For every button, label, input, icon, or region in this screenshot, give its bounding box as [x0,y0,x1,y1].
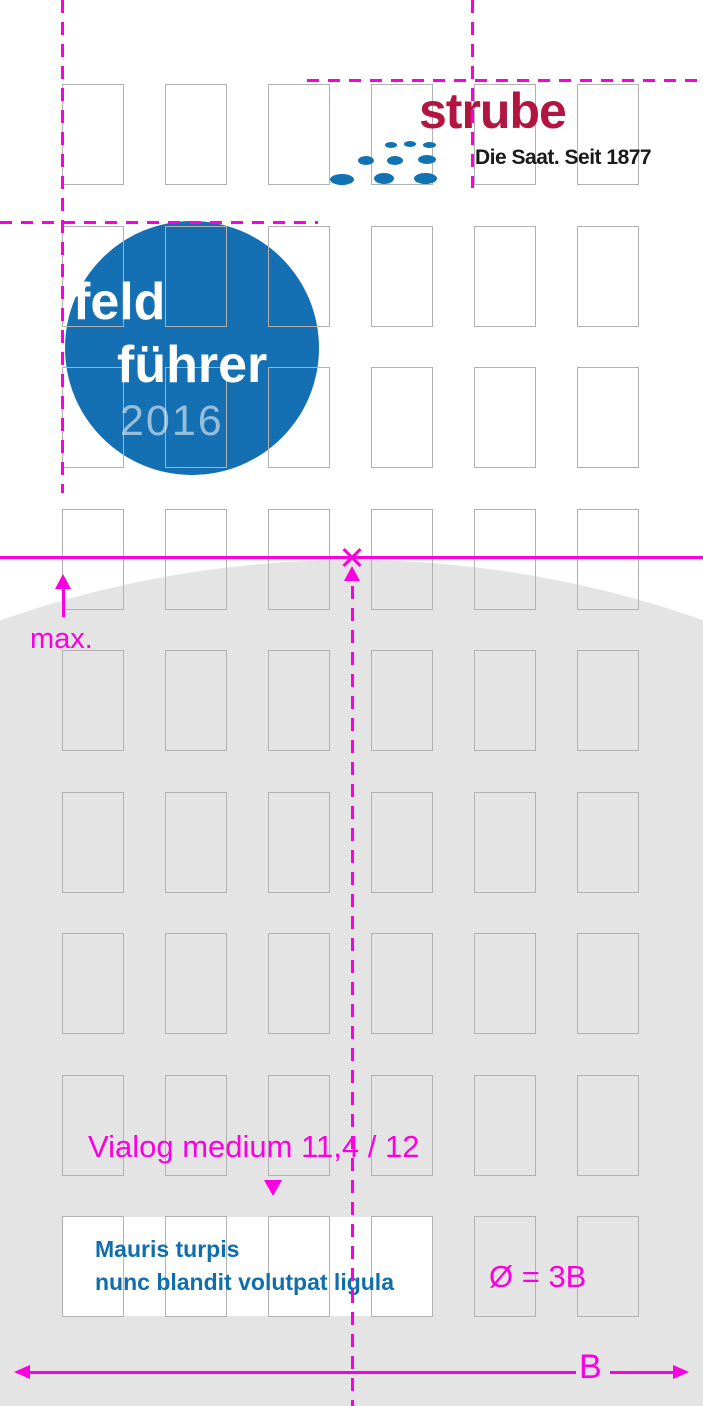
seed-dot [387,156,403,165]
width-arrow-right-icon [673,1365,689,1379]
grid-cell [371,792,433,893]
seed-dot [358,156,374,165]
center-cross-mark [340,545,364,569]
grid-cell [371,226,433,327]
grid-cell [268,650,330,751]
guide-dashed-top [307,79,703,82]
grid-cell [268,792,330,893]
grid-cell [474,509,536,610]
width-line-right [610,1371,676,1374]
grid-cell [371,367,433,468]
grid-cell [474,933,536,1034]
guide-dashed-right-vertical [471,0,474,188]
guide-dashed-left-vertical [61,0,64,493]
logo-text-year: 2016 [120,400,224,443]
grid-cell [577,792,639,893]
grid-cell [165,933,227,1034]
grid-cell [371,933,433,1034]
grid-cell [62,509,124,610]
grid-cell [474,1075,536,1176]
grid-cell [62,933,124,1034]
grid-cell [165,509,227,610]
grid-cell [165,226,227,327]
sample-text-line1: Mauris turpis [95,1233,394,1266]
grid-cell [371,509,433,610]
grid-cell [268,509,330,610]
max-arrow-line [62,588,65,617]
max-arrow-up-icon [55,574,71,589]
grid-cell [577,650,639,751]
grid-cell [268,367,330,468]
grid-cell [268,84,330,185]
grid-cell [474,792,536,893]
width-label: B [579,1350,602,1384]
seed-dot [418,155,436,164]
grid-cell [577,367,639,468]
grid-cell [577,509,639,610]
grid-cell [474,226,536,327]
grid-cell [165,650,227,751]
seed-dot [330,174,354,185]
grid-cell [577,933,639,1034]
grid-cell [371,650,433,751]
grid-cell [577,226,639,327]
logo-text-feld: feld [73,276,165,328]
spec-page: feld führer 2016 strube Die Saat. Seit 1… [0,0,703,1406]
seed-dot [423,142,436,148]
seed-dot [414,173,437,184]
seed-dot [404,141,416,147]
diameter-label: Ø = 3B [489,1261,586,1292]
grid-cell [62,792,124,893]
guide-dashed-left-horizontal [0,221,318,224]
grid-cell [165,84,227,185]
grid-cell [268,226,330,327]
sample-text-line2: nunc blandit volutpat ligula [95,1266,394,1299]
grid-cell [165,792,227,893]
font-spec-label: Vialog medium 11,4 / 12 [88,1131,419,1162]
grid-cell [62,650,124,751]
strube-wordmark: strube [419,86,566,136]
sample-text: Mauris turpis nunc blandit volutpat ligu… [95,1233,394,1299]
grid-cell [474,367,536,468]
grid-cell [62,84,124,185]
max-label: max. [30,625,93,654]
grid-cell [474,650,536,751]
grid-cell [268,933,330,1034]
grid-cell [577,1075,639,1176]
grid-cell [62,367,124,468]
width-line-left [27,1371,576,1374]
strube-tagline: Die Saat. Seit 1877 [475,147,651,168]
seed-dot [374,173,394,184]
seed-dot [385,142,397,148]
center-axis-dashed-line [351,586,354,1406]
logo-text-fuehrer: führer [117,339,267,391]
grid-cell [577,84,639,185]
font-spec-arrow-down-icon [264,1180,282,1196]
